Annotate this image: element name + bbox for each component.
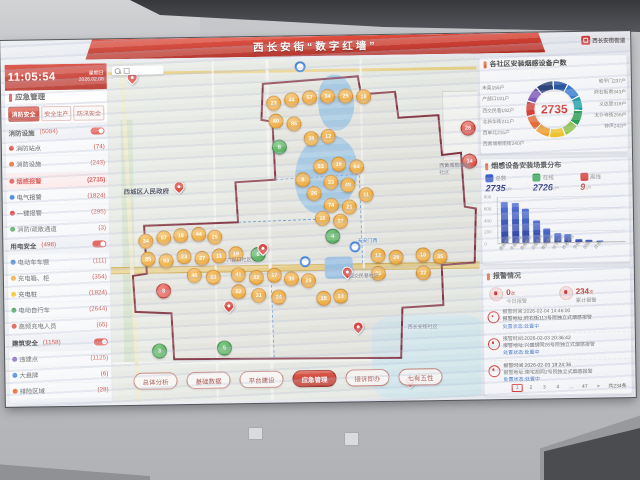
stat-unit: /户 [585,186,591,191]
sidebar-row-label: 消防站点 [16,144,41,153]
stat-label: 总数 [495,174,506,182]
nav-tab[interactable]: 总体分析 [133,372,177,390]
dashboard-screen: 西长安街“数字红墙” 西长安街街道 11:05:54 星期日 2026.02.0… [0,31,636,407]
sidebar-row[interactable]: 用电安全 (498) [7,237,109,255]
stat-value: 2726/户 [533,182,577,193]
x-axis-labels: 居民楼院平房院落商务楼宇沿街商户餐饮场所地下空间养老机构学校医院其他 [500,243,625,258]
sidebar-row[interactable]: 违建点 (1125) [9,350,111,368]
device-stat: 在线 2726/户 [533,173,578,193]
category-dot-icon [10,227,15,232]
sidebar-row[interactable]: 大悬牌 (6) [9,366,111,384]
stat-value: 9/户 [580,181,624,192]
donut-callout: 府右街南343户 [594,87,626,99]
donut-callout: 义达里319户 [594,99,626,111]
sidebar-row-count: (1158) [43,339,61,346]
sidebar-row[interactable]: 电气报警 (1824) [7,188,109,206]
alarm-ring-icon [488,365,500,377]
sidebar-row-label: 烟感报警 [16,176,41,185]
alarm-stat-value: 234 [576,287,589,296]
category-dot-icon [11,259,16,264]
sidebar-row-label: 排险区域 [20,386,45,395]
sidebar-row-count: (243) [90,160,105,167]
device-stat: 总数 2735/户 [485,174,530,194]
y-tick: 800 [484,194,492,199]
donut-callout: 太仆寺街256户 [594,110,626,122]
category-dot-icon [12,373,17,378]
sidebar-row[interactable]: 一键报警 (295) [7,204,109,222]
toggle-switch[interactable] [95,403,109,404]
page-button[interactable]: 3 [539,383,550,391]
sidebar-row-label: 消防/疏散通道 [17,224,57,234]
layers-icon [124,67,130,73]
sidebar-row[interactable]: 充电桩 (1824) [8,285,110,303]
pagination-total: 共234条 [608,382,626,389]
alarm-list-item[interactable]: 报警时间:2026-02-03 20:36:42 报警地址:兴盛胡同26号院独立… [484,331,631,360]
page-button[interactable]: 4 [552,383,563,391]
donut-chart: 2735 未英155户户部口181户西交民巷192户北新华街211户西单北215… [480,68,628,152]
sidebar-row[interactable]: 消防/疏散通道 (3) [7,220,109,238]
map-label: 西城区人民政府 [123,185,169,196]
sidebar-row-count: (1824) [87,192,105,199]
donut-callout: 和平门237户 [594,76,626,88]
donut-callout: 西交民巷192户 [482,105,524,117]
sidebar-row-label: 大悬牌 [19,370,38,379]
stat-square-icon [485,174,493,182]
category-dot-icon [10,195,15,200]
sidebar-row[interactable]: 高频充电人员 (65) [9,318,111,336]
stat-unit: /户 [553,186,559,191]
toggle-switch[interactable] [92,241,106,248]
logo-text: 西长安街街道 [592,36,625,45]
map-search-chip[interactable] [112,65,164,75]
donut-labels-right: 和平门237户府右街南343户义达里319户太仆寺街256户钟声242户 [594,76,627,133]
alarm-status: 处置状态:处置中 [503,348,627,357]
bell-icon [559,286,573,300]
left-sidebar: 11:05:54 星期日 2026.02.08 应急管理 消防安全安全生产防汛安… [4,62,113,404]
nav-tab[interactable]: 七有五性 [398,368,442,386]
donut-ring: 2735 [526,81,583,138]
sidebar-row[interactable]: 烟感报警 (2735) [6,172,108,190]
sidebar-row-count: (2735) [87,176,105,183]
sidebar-row-label: 充电箱、柜 [18,273,50,282]
wall-switch-plate [344,432,359,446]
sidebar-row[interactable]: 消防设施 (5084) [5,123,107,141]
x-tick: 其他 [593,241,608,254]
map-label: 天安门西 [357,237,377,244]
sidebar-row[interactable]: 防汛事件 (34) [10,398,112,403]
alarm-list-item[interactable]: 报警时间:2026-02-04 14:46:00 报警地址:府右街113号院独立… [483,304,630,333]
title-accent-icon [484,61,487,68]
alarm-ring-icon [487,311,499,323]
stat-value: 2735/户 [485,183,529,194]
category-dot-icon [9,178,14,183]
sidebar-row-count: (354) [92,273,107,280]
search-icon [115,68,121,74]
title-accent-icon [487,273,490,280]
donut-callout: 西单北215户 [483,128,525,140]
stat-label: 离线 [590,173,601,181]
map-label: 西黄城根南街社区 [439,163,471,177]
sidebar-row-label: 电动车车棚 [18,257,50,266]
donut-callout: 钟声242户 [595,121,627,133]
nav-tab[interactable]: 平台建设 [239,371,283,389]
device-stat: 离线 9/户 [580,172,625,192]
stat-square-icon [533,173,541,181]
stat-label: 在线 [543,173,554,181]
stat-square-icon [580,173,588,181]
corner-logo: 西长安街街道 [581,35,625,45]
room-photo: 西长安街“数字红墙” 西长安街街道 11:05:54 星期日 2026.02.0… [0,0,640,480]
right-column: 各社区安装烟感设备户数 2735 未英155户户部口181户西交民巷192户北新… [478,54,632,396]
donut-callout: 北新华街211户 [482,117,524,129]
category-dot-icon [11,292,16,297]
nav-tab[interactable]: 接诉即办 [345,369,389,387]
sidebar-row-count: (5084) [40,128,58,135]
sidebar-tabs: 消防安全安全生产防汛安全 [5,103,107,125]
sidebar-row-label: 消防设施 [9,127,35,137]
panel-scene-distribution: 烟感设备安装场景分布 总数 2735/户 [480,156,631,264]
page-buttons: 1234…47> [512,382,604,391]
stat-unit: /户 [506,187,512,192]
sidebar-row-label: 消防设施 [16,160,41,169]
clock-date: 2026.02.08 [79,76,104,83]
sidebar-row-count: (28) [97,386,108,393]
sidebar-row-count: (2644) [89,305,107,312]
y-tick: 0 [484,241,492,246]
y-tick: 400 [484,218,492,223]
sidebar-row-label: 电动自行车 [18,305,50,314]
category-dot-icon [9,146,14,151]
map-label: 西长安街社区 [408,323,438,330]
panel-title: 报警情况 [493,271,521,281]
page-button[interactable]: 1 [512,383,523,391]
sidebar-row-count: (3) [98,225,106,232]
alarm-stat: 0次 今日报警 [489,283,555,304]
sidebar-row[interactable]: 充电箱、柜 (354) [8,269,110,287]
header-accent-icon [9,93,12,101]
category-dot-icon [9,162,14,167]
y-axis-ticks: 8006004002000 [484,194,492,246]
sidebar-row-count: (65) [96,322,107,329]
district-map[interactable]: 2344573425184085381253196433482674211191… [108,56,482,402]
sidebar-row[interactable]: 排险区域 (28) [10,382,112,400]
sidebar-row-label: 防汛事件 [13,402,39,404]
sidebar-row-count: (111) [93,257,107,264]
title-accent-icon [485,163,488,170]
clock-widget: 11:05:54 星期日 2026.02.08 [5,63,107,91]
donut-labels-left: 未英155户户部口181户西交民巷192户北新华街211户西单北215户西黄城根… [482,83,525,151]
page-button[interactable]: 2 [525,383,536,391]
category-dot-icon [12,356,17,361]
category-dot-icon [13,389,18,394]
alarm-stat: 234次 累计报警 [559,282,625,303]
sidebar-row-count: (6) [101,370,109,377]
sidebar-row[interactable]: 消防设施 (243) [6,156,108,174]
sidebar-tab[interactable]: 防汛安全 [74,105,105,120]
panel-smoke-households: 各社区安装烟感设备户数 2735 未英155户户部口181户西交民巷192户北新… [478,54,629,154]
sidebar-header-label: 应急管理 [15,91,45,102]
category-dot-icon [12,324,17,329]
nav-tab[interactable]: 应急管理 [292,370,336,388]
map-label: 西交民巷社区 [349,272,379,279]
floor-shadow [0,454,150,480]
panel-title: 各社区安装烟感设备户数 [490,58,567,69]
sidebar-tab[interactable]: 安全生产 [41,106,72,121]
page-button[interactable]: > [593,382,604,390]
sidebar-row[interactable]: 消防站点 (74) [6,139,108,157]
alarm-stats: 0次 今日报警 234次 累计报警 [483,280,630,306]
sidebar-row-count: (74) [94,144,105,151]
alarm-status: 处置状态:处置中 [503,322,627,331]
sidebar-row-label: 高频充电人员 [19,321,57,331]
donut-center-value: 2735 [541,102,568,116]
pagination: 1234…47> 共234条 [485,380,632,395]
bell-icon [489,287,503,301]
y-tick: 200 [484,230,492,235]
alarm-stat-unit: 次 [511,291,516,296]
cluster-marker[interactable]: 63 [206,270,221,285]
wall-switch-plate [248,427,263,440]
category-dot-icon [11,308,16,313]
toggle-switch[interactable] [94,338,108,345]
logo-icon [581,36,590,45]
nav-tab[interactable]: 基础数据 [186,371,230,389]
alarm-ring-icon [488,338,500,350]
alarm-stat-unit: 次 [589,290,594,295]
cluster-marker[interactable]: 35 [432,249,447,264]
sidebar-row-label: 建筑安全 [12,337,38,347]
sidebar-row-label: 违建点 [19,354,38,363]
map-label: 六部口社区 [227,256,252,263]
donut-callout: 户部口181户 [482,94,524,106]
sidebar-row[interactable]: 建筑安全 (1158) [9,334,111,352]
donut-callout: 未英155户 [482,83,524,95]
page-title: 西长安街“数字红墙” [253,38,378,55]
page-button[interactable]: … [566,382,577,390]
sidebar-row-count: (295) [91,208,106,215]
sidebar-row-label: 用电安全 [10,240,36,250]
toggle-switch[interactable] [91,127,105,134]
panel-title: 烟感设备安装场景分布 [491,160,561,171]
page-button[interactable]: 47 [579,382,590,390]
alarm-list-item[interactable]: 报警时间:2026-02-03 18:24:36 报警地址:南宅胡同2号院独立式… [484,358,631,383]
sidebar-row-label: 电气报警 [17,192,42,201]
sidebar-menu: 消防设施 (5084) 消防站点 (74) 消防设施 [5,123,112,404]
sidebar-row-count: (1125) [90,354,108,361]
sidebar-row-label: 充电桩 [18,289,37,298]
clock-time: 11:05:54 [8,71,56,84]
sidebar-row[interactable]: 电动自行车 (2644) [8,301,110,319]
sidebar-row[interactable]: 电动车车棚 (111) [8,253,110,271]
sidebar-tab[interactable]: 消防安全 [8,106,39,121]
sidebar-row-label: 一键报警 [17,208,42,217]
y-tick: 600 [484,206,492,211]
cluster-marker[interactable]: 25 [338,88,353,103]
donut-callout: 西黄城根南街240户 [483,139,525,151]
category-dot-icon [11,276,16,281]
category-dot-icon [10,211,15,216]
device-stats: 总数 2735/户 在线 2726/户 [481,170,628,194]
alarm-list: 报警时间:2026-02-04 14:46:00 报警地址:府右街113号院独立… [483,304,631,382]
sidebar-row-count: (498) [41,242,56,249]
panel-alarms: 报警情况 0次 今日报警 [482,266,633,396]
sidebar-row-count: (1824) [89,289,107,296]
